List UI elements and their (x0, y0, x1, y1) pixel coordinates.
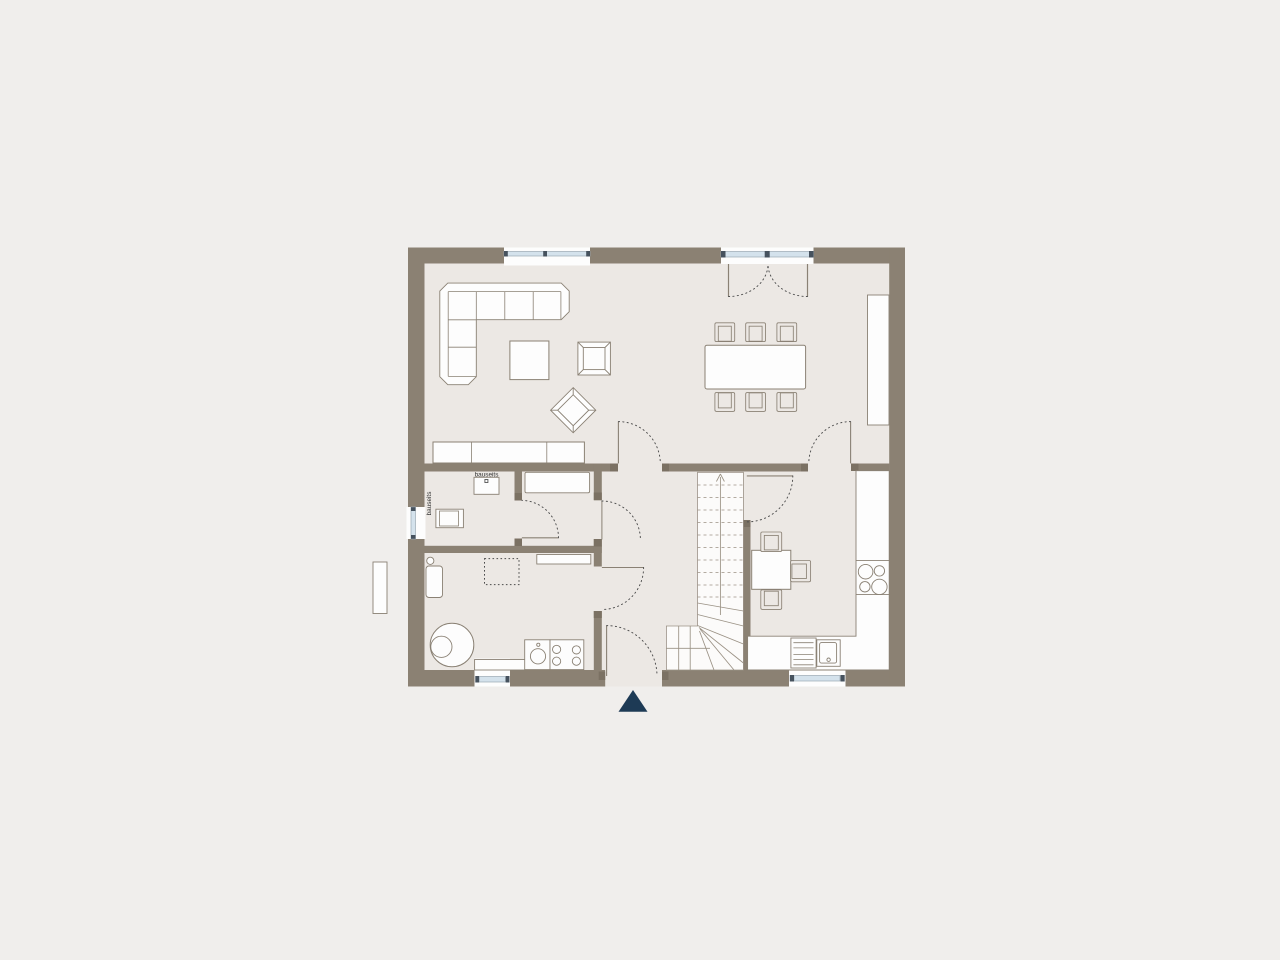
svg-text:bauseits: bauseits (426, 492, 433, 516)
svg-text:bauseits: bauseits (475, 472, 499, 479)
